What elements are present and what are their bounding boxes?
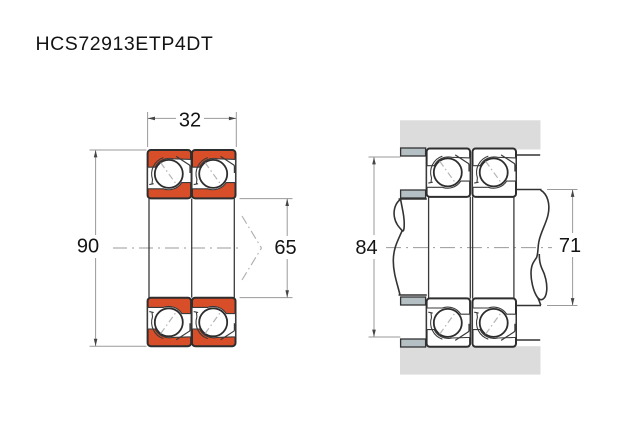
- svg-text:65: 65: [274, 237, 296, 259]
- svg-text:84: 84: [355, 237, 377, 259]
- svg-text:71: 71: [559, 235, 581, 257]
- svg-text:HCS72913ETP4DT: HCS72913ETP4DT: [36, 33, 214, 55]
- svg-text:90: 90: [77, 236, 99, 258]
- svg-text:32: 32: [179, 110, 201, 132]
